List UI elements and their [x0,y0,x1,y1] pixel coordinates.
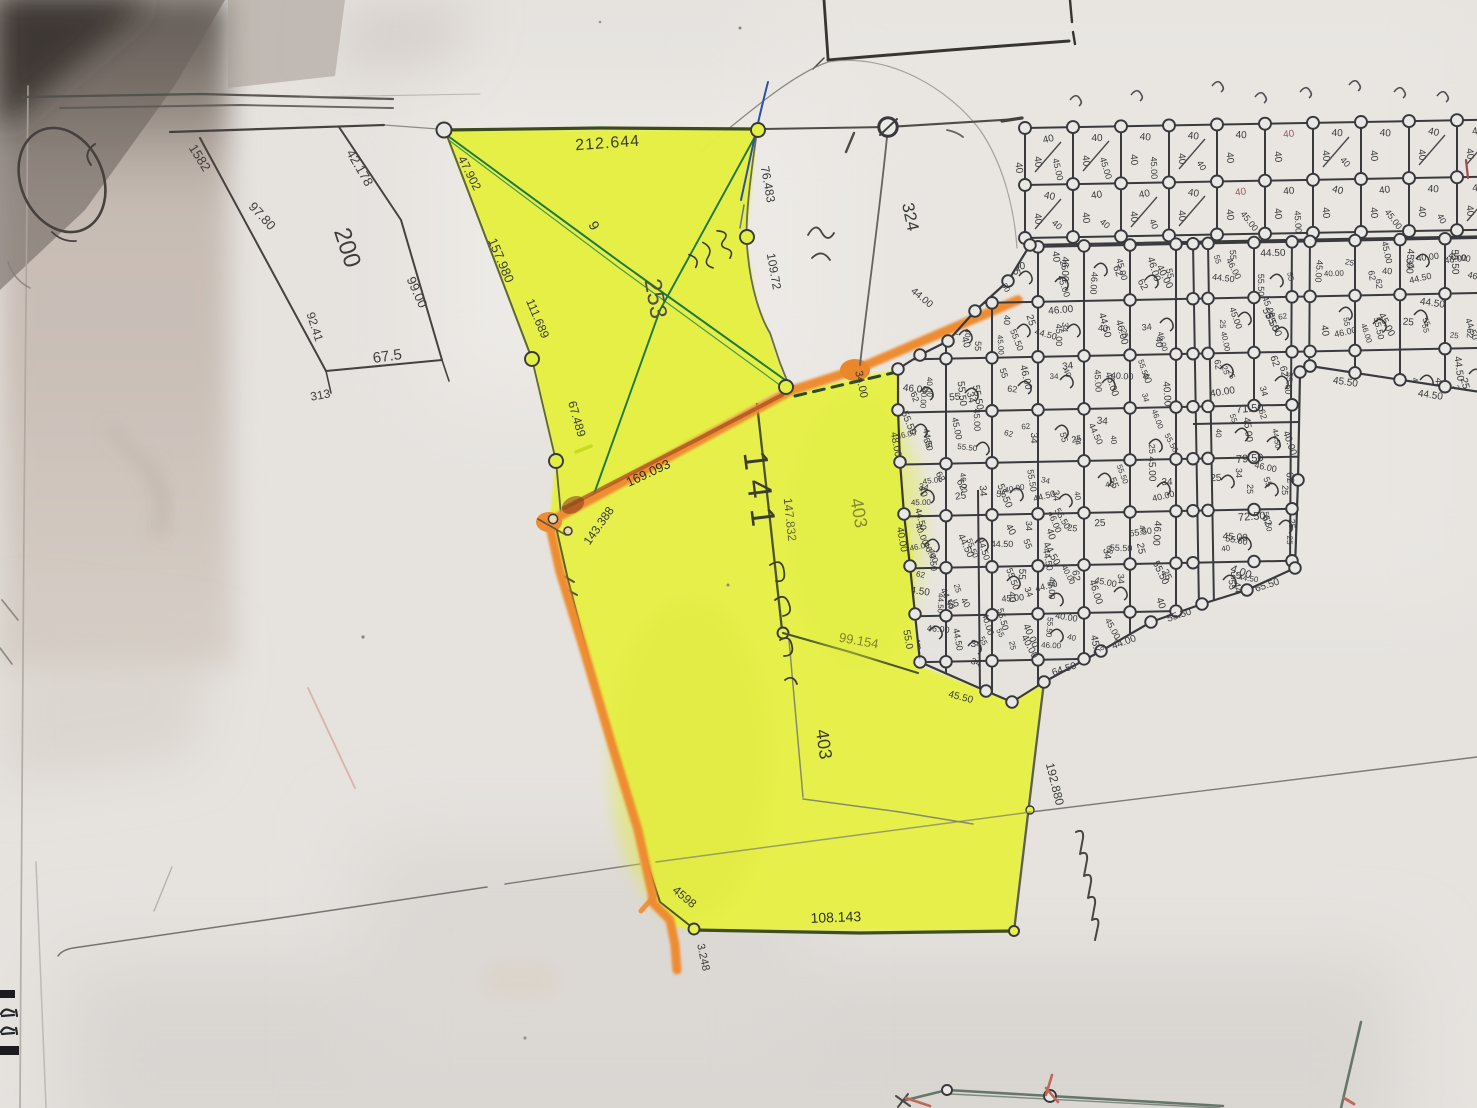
svg-text:108.143: 108.143 [810,908,861,926]
svg-text:40: 40 [1221,543,1232,553]
svg-text:40: 40 [1128,211,1140,223]
svg-text:40: 40 [1379,128,1392,140]
svg-text:34: 34 [1403,257,1415,270]
svg-text:40: 40 [1368,207,1380,219]
svg-text:55.50: 55.50 [1044,617,1055,638]
svg-text:40: 40 [1032,156,1044,168]
svg-text:34: 34 [977,485,989,497]
svg-text:40: 40 [1139,131,1152,143]
svg-text:62: 62 [1069,569,1081,582]
svg-text:40: 40 [1272,151,1284,163]
svg-text:40: 40 [1224,152,1236,164]
svg-text:40: 40 [1320,150,1332,162]
svg-text:40: 40 [1176,210,1188,222]
svg-text:45.00: 45.00 [911,498,932,507]
svg-text:34: 34 [1028,432,1039,444]
svg-text:25: 25 [1210,473,1222,485]
svg-text:40: 40 [1091,133,1103,144]
svg-text:34: 34 [1062,360,1075,372]
svg-text:40: 40 [1283,128,1296,140]
svg-text:40: 40 [1013,162,1025,174]
svg-text:72.50: 72.50 [1238,510,1266,524]
svg-text:40: 40 [1318,324,1331,337]
svg-text:403: 403 [812,728,836,761]
svg-text:25: 25 [1285,535,1294,545]
svg-text:45.00: 45.00 [1149,156,1160,179]
svg-text:40: 40 [1283,186,1295,198]
svg-text:40: 40 [1331,128,1343,140]
svg-text:34: 34 [1141,322,1152,333]
svg-text:46.00: 46.00 [1041,641,1062,651]
svg-text:40.00: 40.00 [1160,381,1172,407]
svg-text:62: 62 [1283,471,1295,484]
svg-text:25: 25 [1071,433,1082,444]
svg-text:40: 40 [1109,435,1119,445]
svg-text:55.50: 55.50 [1449,249,1461,275]
svg-text:44.50: 44.50 [1260,248,1286,260]
svg-text:40: 40 [1471,125,1477,137]
svg-text:40: 40 [1464,205,1476,217]
svg-text:55.50: 55.50 [1283,372,1295,395]
svg-text:40: 40 [1032,213,1044,225]
svg-text:55.50: 55.50 [1110,543,1133,554]
svg-text:40: 40 [1234,186,1247,198]
svg-text:34: 34 [1234,468,1244,478]
svg-text:79.50: 79.50 [1236,452,1264,466]
svg-text:55: 55 [973,341,983,351]
svg-text:44.50: 44.50 [927,548,939,571]
svg-text:45.00: 45.00 [1054,324,1064,347]
svg-text:25: 25 [1094,518,1106,529]
svg-text:46.00: 46.00 [1150,520,1163,546]
svg-text:40: 40 [1416,149,1428,161]
svg-text:25: 25 [1449,331,1459,341]
svg-text:40: 40 [1080,155,1092,167]
svg-text:40: 40 [1272,208,1284,220]
svg-text:45.00: 45.00 [1292,210,1303,233]
svg-text:25: 25 [1280,485,1290,495]
svg-text:45.00: 45.00 [972,408,983,431]
svg-text:40: 40 [1464,148,1476,160]
svg-text:40: 40 [1002,315,1012,325]
svg-text:44.50: 44.50 [991,539,1014,549]
svg-text:40: 40 [1214,428,1223,438]
svg-text:45.00: 45.00 [1313,260,1325,283]
svg-text:34: 34 [1049,489,1062,502]
svg-text:55.50: 55.50 [1256,274,1266,297]
svg-text:40: 40 [1080,212,1092,224]
svg-text:55: 55 [949,391,962,403]
svg-text:34: 34 [1050,372,1060,381]
svg-text:40: 40 [1416,206,1428,218]
svg-text:40: 40 [1072,491,1082,502]
svg-text:45.00: 45.00 [995,335,1005,356]
svg-text:40: 40 [1368,150,1380,162]
svg-text:40: 40 [1090,189,1103,201]
svg-text:40: 40 [1006,591,1017,603]
svg-text:40.00: 40.00 [1111,370,1134,381]
svg-text:34: 34 [1100,548,1112,561]
svg-text:46.00: 46.00 [1088,272,1099,295]
svg-text:40: 40 [1382,266,1393,277]
svg-text:40: 40 [1128,154,1140,166]
svg-text:46.00: 46.00 [1048,304,1074,317]
svg-text:25: 25 [1147,444,1157,454]
svg-text:62: 62 [1007,384,1018,395]
svg-text:40: 40 [1427,184,1439,196]
svg-text:45.00: 45.00 [1145,456,1157,482]
svg-text:25: 25 [1218,319,1227,329]
svg-text:25: 25 [1402,317,1415,329]
svg-text:40: 40 [1187,130,1200,142]
svg-text:40: 40 [1320,207,1332,219]
svg-text:71.50: 71.50 [1236,402,1264,416]
svg-text:40: 40 [1235,130,1247,141]
svg-text:25: 25 [1245,484,1255,494]
svg-text:55: 55 [996,489,1007,500]
svg-text:40: 40 [1187,187,1200,200]
svg-text:45.00: 45.00 [1092,369,1103,392]
svg-text:40.00: 40.00 [1324,269,1345,279]
svg-text:40: 40 [1176,153,1188,165]
svg-text:40: 40 [1378,184,1391,196]
svg-text:40: 40 [1472,183,1477,195]
svg-text:40: 40 [1224,209,1236,221]
svg-text:62: 62 [1021,422,1031,432]
svg-text:62: 62 [1374,279,1385,290]
svg-text:34: 34 [1024,521,1034,531]
svg-text:34: 34 [1116,574,1127,585]
